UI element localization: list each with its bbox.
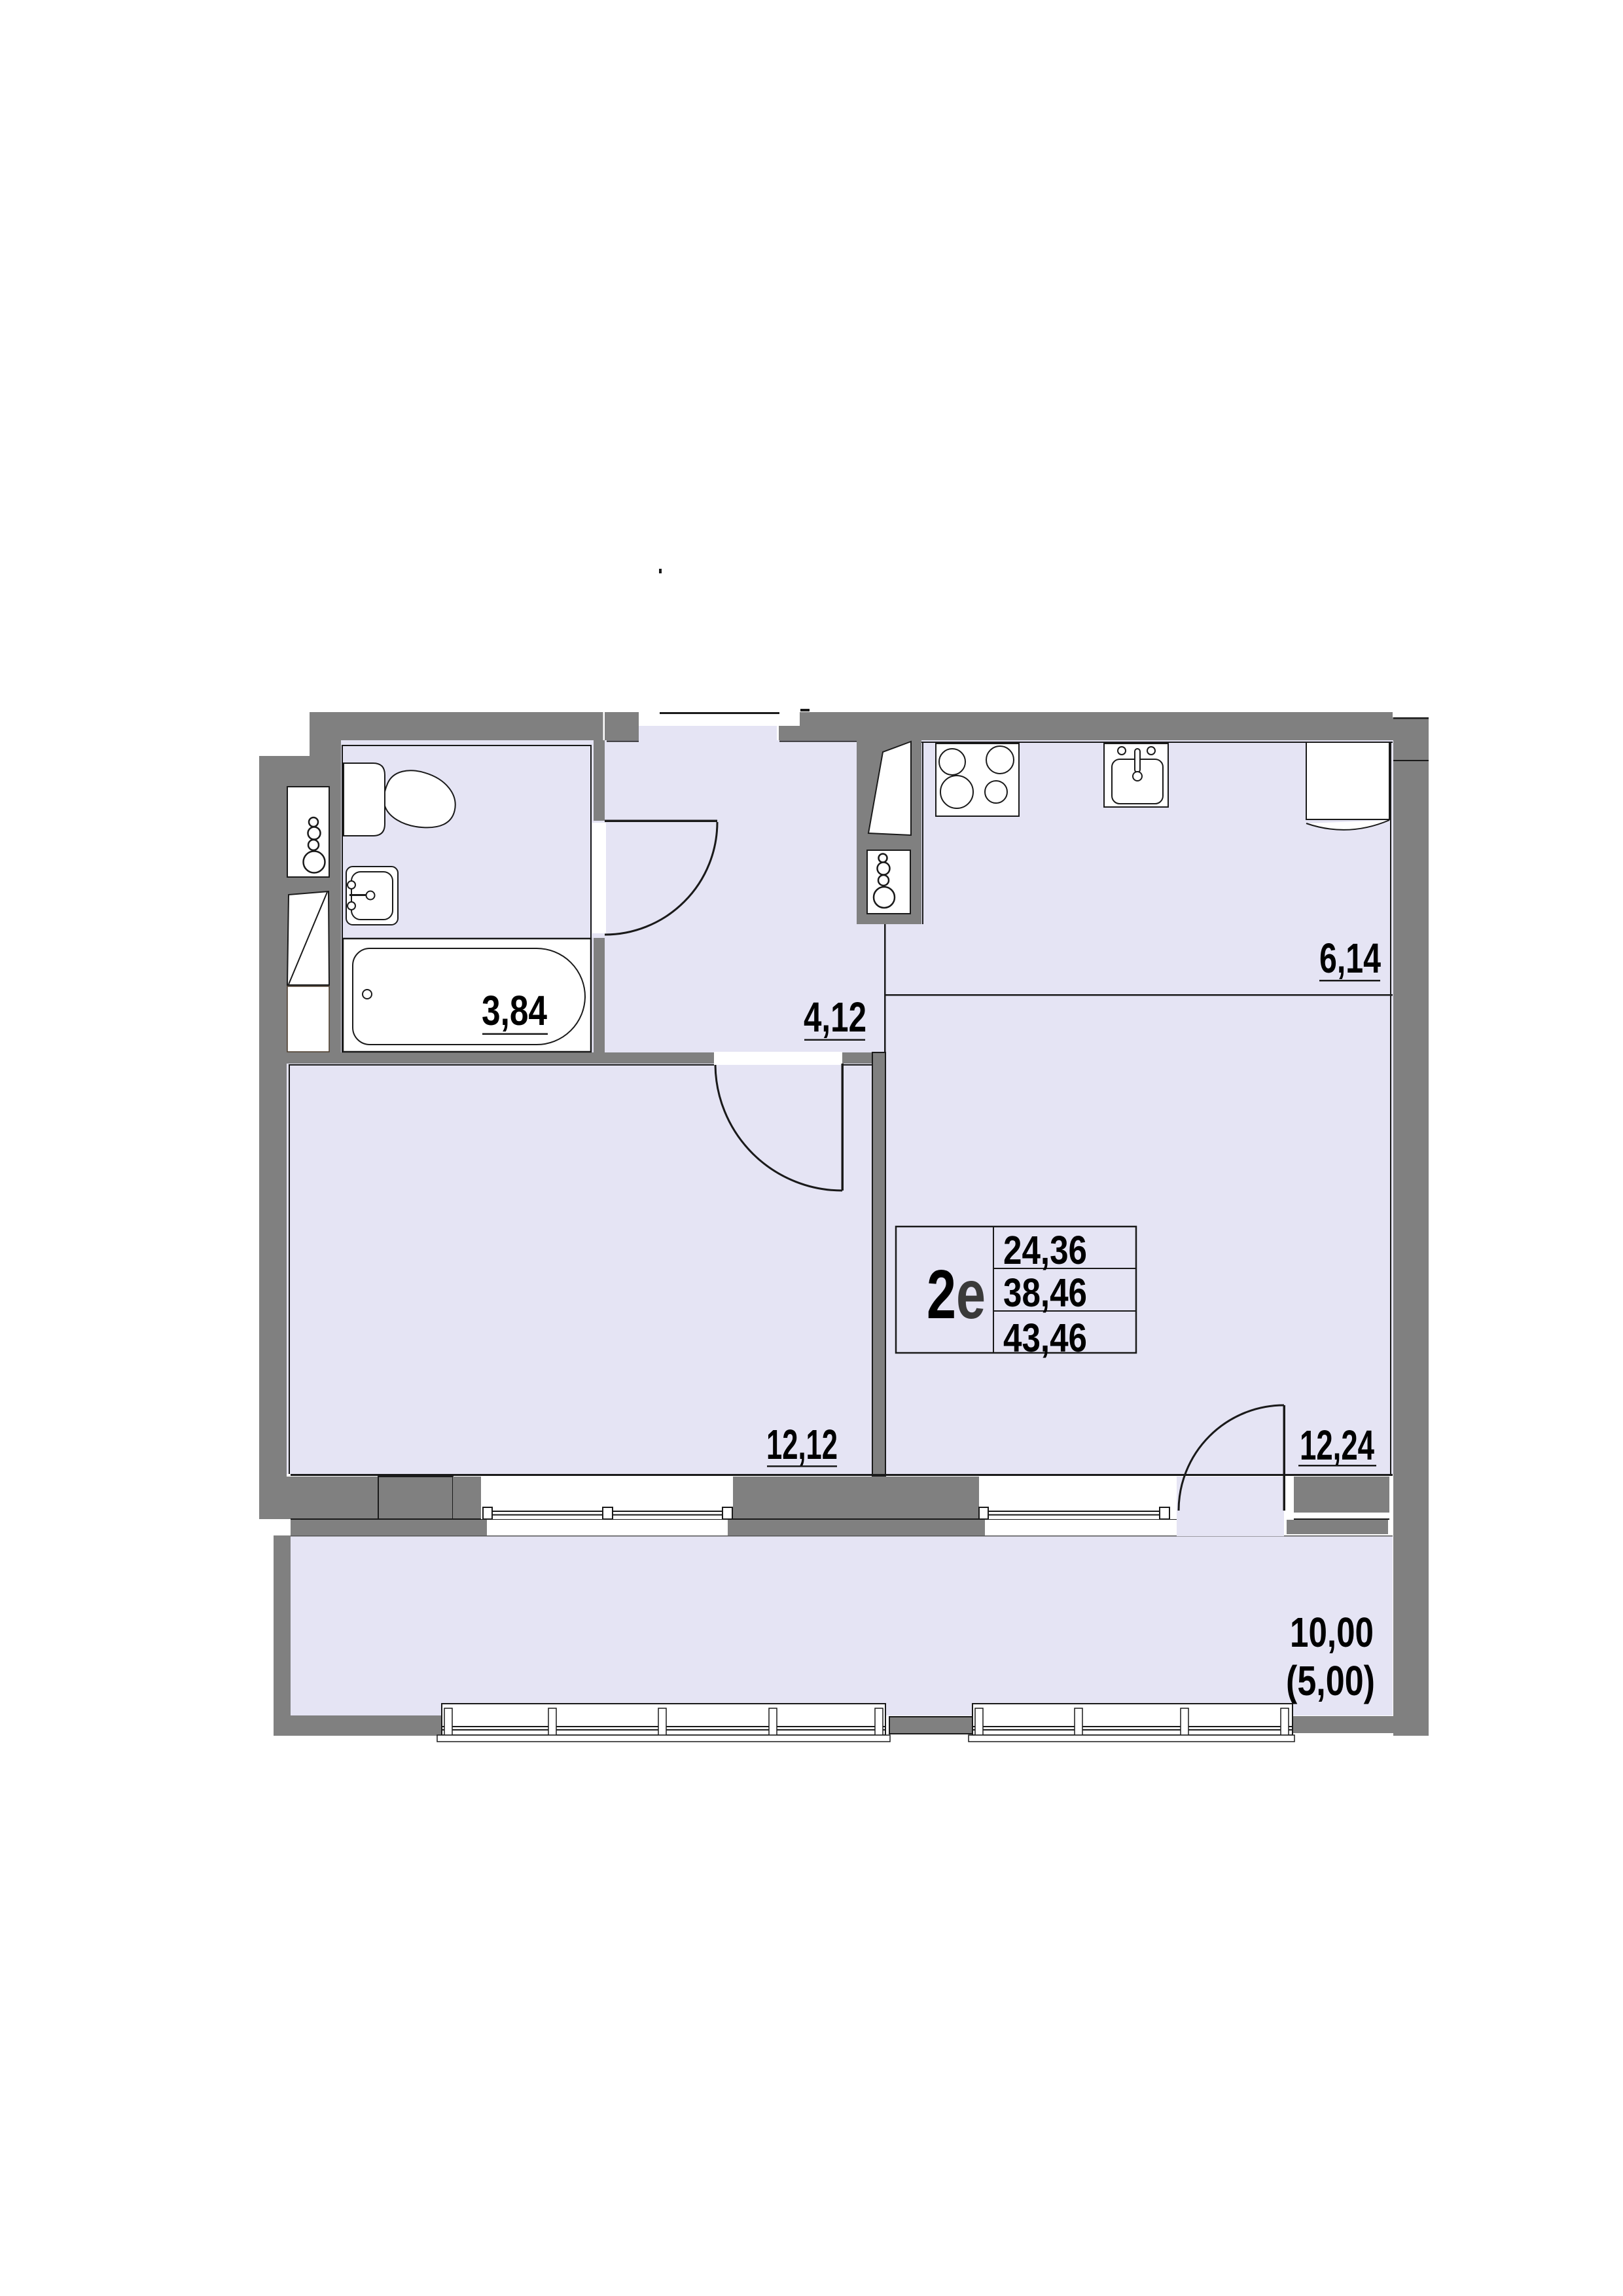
svg-text:4,12: 4,12 [804,994,866,1041]
svg-text:12,12: 12,12 [766,1421,838,1468]
svg-text:12,24: 12,24 [1300,1422,1374,1469]
svg-text:43,46: 43,46 [1003,1316,1087,1360]
svg-text:3,84: 3,84 [482,987,547,1034]
svg-text:(5,00): (5,00) [1286,1657,1375,1704]
svg-text:24,36: 24,36 [1003,1228,1087,1272]
svg-text:6,14: 6,14 [1319,935,1381,982]
svg-text:10,00: 10,00 [1290,1609,1374,1656]
svg-text:38,46: 38,46 [1003,1270,1087,1315]
svg-text:2е: 2е [927,1256,986,1333]
